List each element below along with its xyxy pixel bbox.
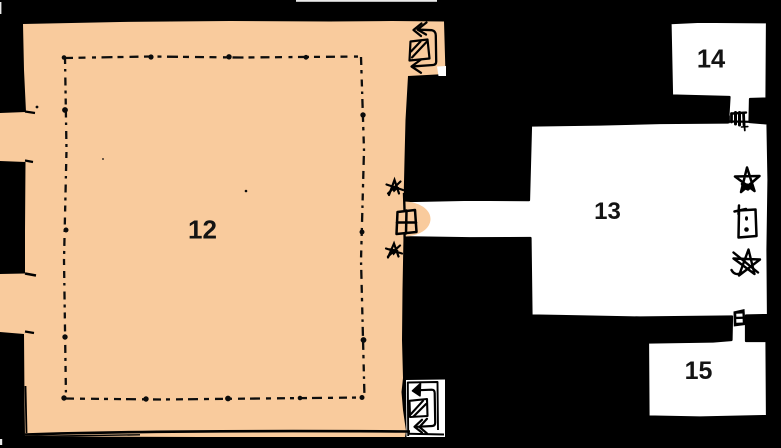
svg-text:13: 13 <box>594 198 621 225</box>
svg-text:14: 14 <box>697 46 726 74</box>
svg-text:12: 12 <box>188 215 217 245</box>
svg-text:15: 15 <box>685 357 713 385</box>
